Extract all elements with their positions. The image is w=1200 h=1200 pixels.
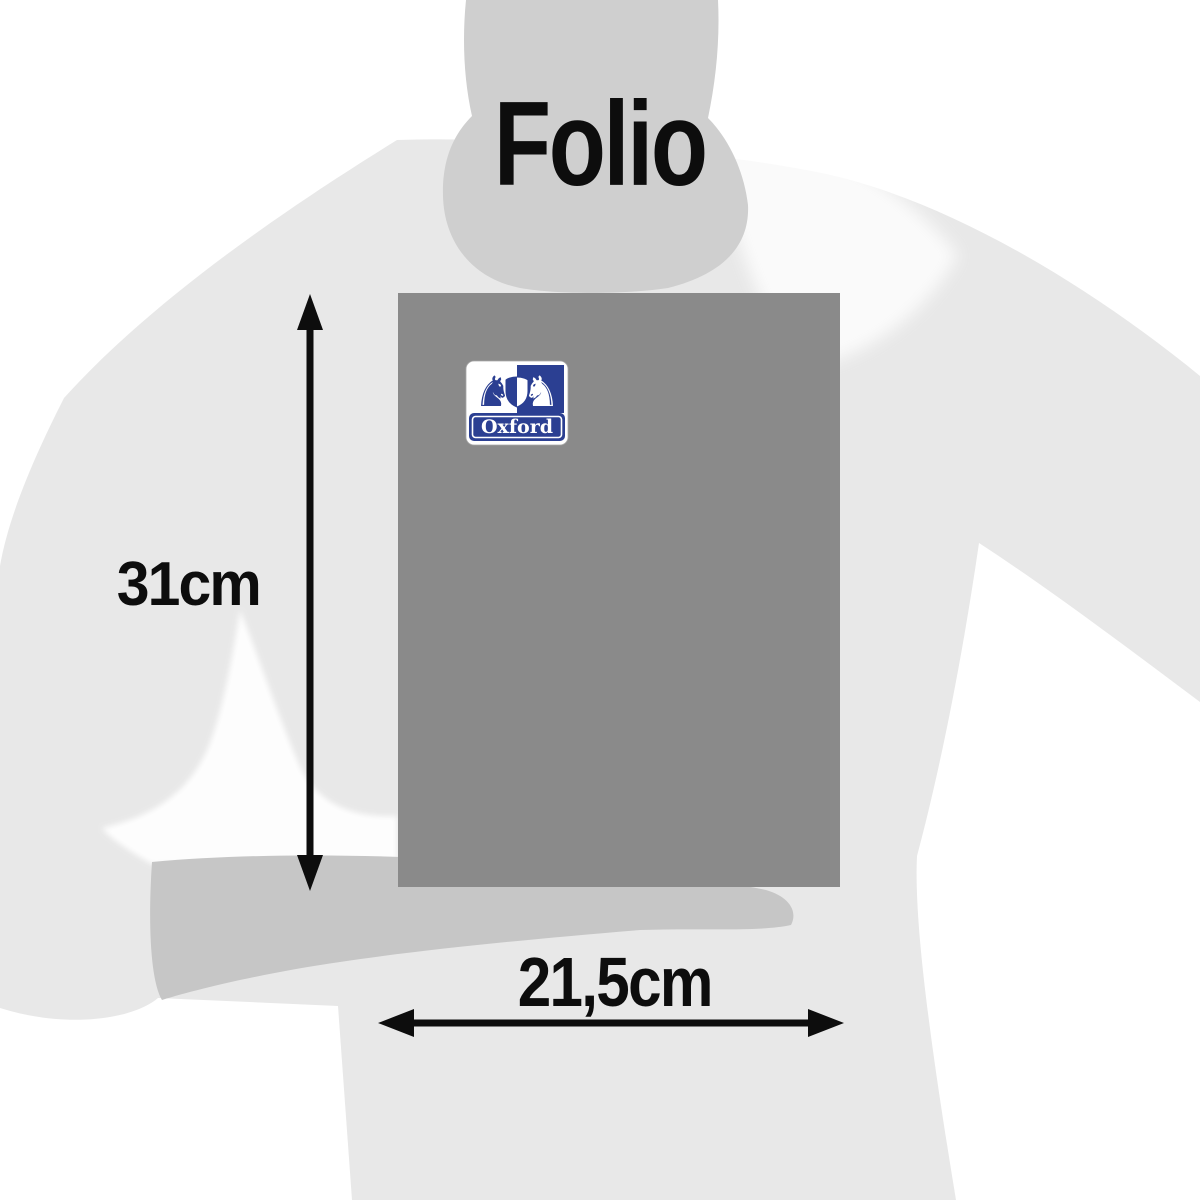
width-value: 21,5cm [518, 947, 712, 1017]
width-label: 21,5cm [465, 947, 765, 1017]
size-illustration: ♞ ♞ Oxford Folio 31cm [0, 0, 1200, 1200]
page-title: Folio [0, 84, 1200, 204]
logo-brand-text: Oxford [481, 416, 553, 438]
page-title-text: Folio [494, 84, 706, 204]
height-label: 31cm [38, 554, 338, 616]
notebook-cover [398, 293, 840, 887]
oxford-logo: ♞ ♞ Oxford [466, 361, 568, 445]
height-value: 31cm [116, 554, 259, 616]
